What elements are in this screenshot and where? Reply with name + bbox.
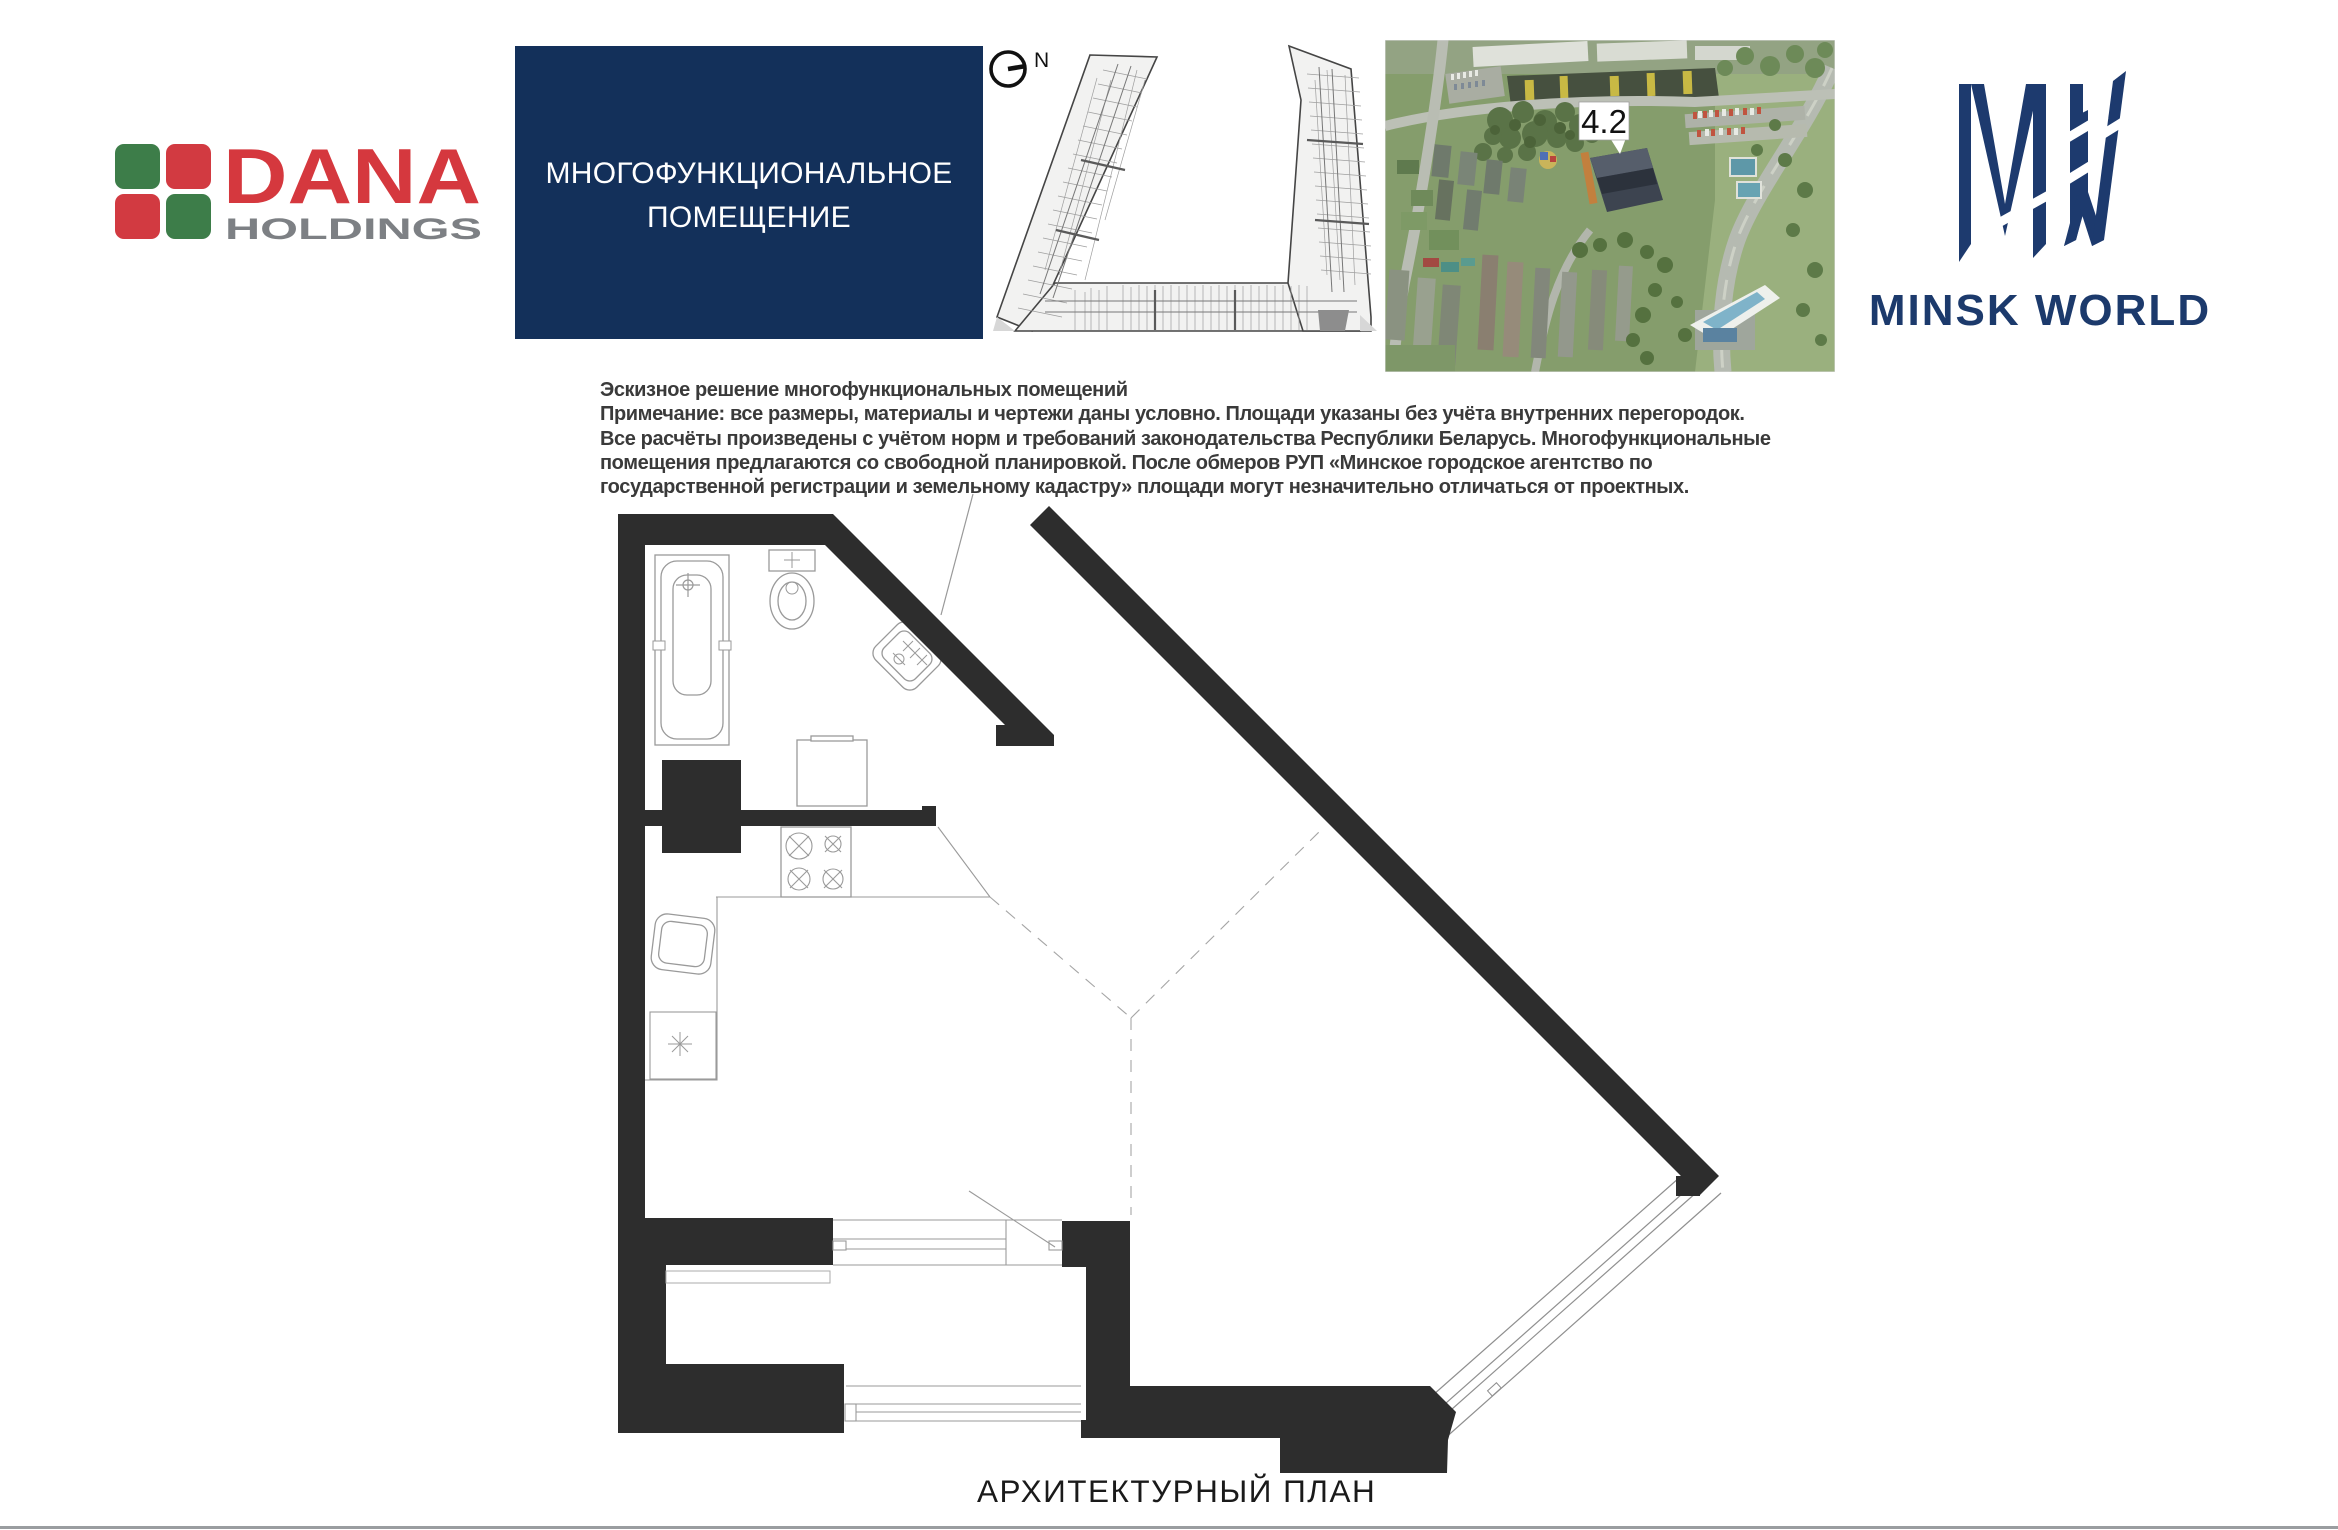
svg-text:4.2: 4.2 (1581, 103, 1627, 140)
svg-text:N: N (1034, 49, 1049, 72)
svg-text:DANA: DANA (223, 144, 481, 220)
svg-text:HOLDINGS: HOLDINGS (225, 213, 482, 244)
